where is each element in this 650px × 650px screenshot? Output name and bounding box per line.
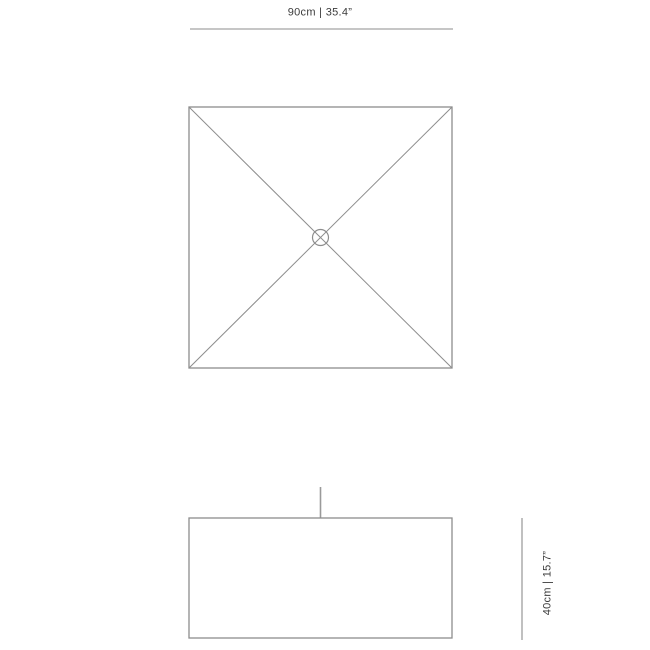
front-view-outline xyxy=(189,518,452,638)
line-drawing xyxy=(0,0,650,650)
dimension-diagram: 90cm | 35.4” 40cm | 15.7” xyxy=(0,0,650,650)
